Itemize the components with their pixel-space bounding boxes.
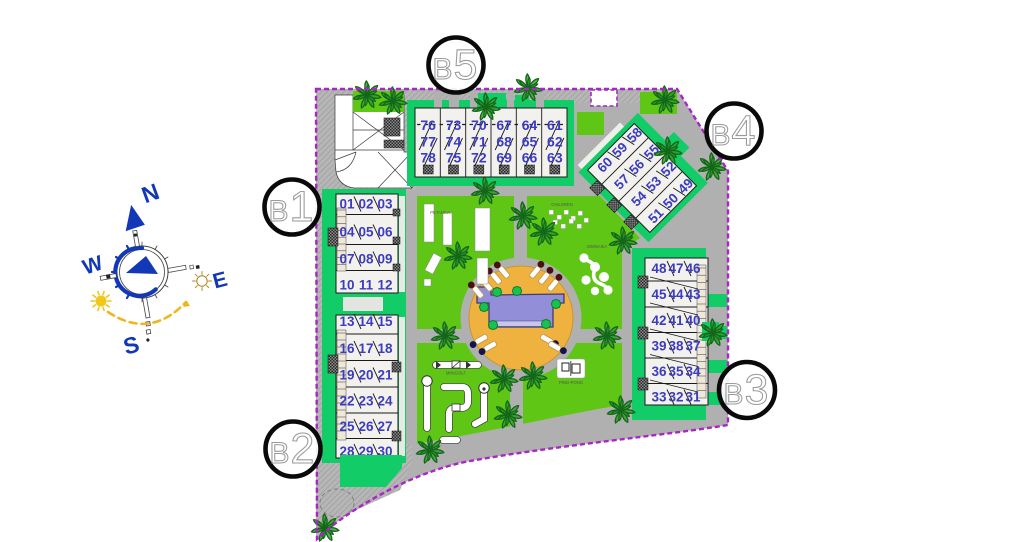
svg-text:75: 75 <box>446 150 462 166</box>
svg-text:76: 76 <box>420 117 436 133</box>
svg-text:65: 65 <box>522 134 538 150</box>
svg-text:07: 07 <box>339 252 354 267</box>
svg-text:61: 61 <box>547 117 563 133</box>
svg-text:74: 74 <box>446 134 462 150</box>
svg-text:03: 03 <box>377 197 393 212</box>
svg-text:CHILDREN: CHILDREN <box>551 202 572 207</box>
svg-text:70: 70 <box>471 117 487 133</box>
svg-text:09: 09 <box>377 252 392 267</box>
svg-text:32: 32 <box>668 390 683 405</box>
svg-text:44: 44 <box>668 287 684 302</box>
svg-text:36: 36 <box>651 364 667 379</box>
svg-text:37: 37 <box>685 339 700 354</box>
svg-text:PETANCA: PETANCA <box>430 210 450 215</box>
svg-text:27: 27 <box>377 419 392 434</box>
svg-text:42: 42 <box>651 313 666 328</box>
svg-text:06: 06 <box>377 225 393 240</box>
svg-text:22: 22 <box>339 394 354 409</box>
svg-text:11: 11 <box>359 278 374 293</box>
svg-text:10: 10 <box>339 278 354 293</box>
svg-text:64: 64 <box>522 117 538 133</box>
svg-text:W: W <box>80 251 106 279</box>
svg-text:20: 20 <box>358 368 373 383</box>
svg-text:31: 31 <box>685 390 701 405</box>
svg-text:17: 17 <box>358 341 373 356</box>
svg-text:12: 12 <box>377 278 392 293</box>
svg-text:69: 69 <box>496 150 512 166</box>
svg-text:35: 35 <box>668 364 684 379</box>
svg-text:67: 67 <box>496 117 512 133</box>
svg-text:46: 46 <box>685 261 701 276</box>
svg-text:04: 04 <box>339 225 355 240</box>
svg-text:48: 48 <box>651 261 667 276</box>
svg-text:78: 78 <box>420 150 436 166</box>
svg-text:77: 77 <box>420 134 436 150</box>
svg-text:N: N <box>138 178 163 208</box>
svg-text:62: 62 <box>547 134 563 150</box>
svg-text:40: 40 <box>685 313 700 328</box>
svg-text:41: 41 <box>668 313 684 328</box>
svg-text:MINIGOLF: MINIGOLF <box>446 371 467 376</box>
svg-text:38: 38 <box>668 339 684 354</box>
svg-text:S: S <box>120 331 142 360</box>
svg-text:33: 33 <box>651 390 667 405</box>
svg-text:14: 14 <box>358 314 374 329</box>
svg-text:15: 15 <box>377 314 393 329</box>
svg-text:43: 43 <box>685 287 701 302</box>
svg-text:01: 01 <box>339 197 355 212</box>
svg-text:66: 66 <box>522 150 538 166</box>
svg-text:23: 23 <box>358 394 374 409</box>
svg-text:PING-PONG: PING-PONG <box>559 380 583 385</box>
svg-text:45: 45 <box>651 287 667 302</box>
svg-text:72: 72 <box>471 150 487 166</box>
svg-text:18: 18 <box>377 341 393 356</box>
svg-text:39: 39 <box>651 339 666 354</box>
svg-text:71: 71 <box>471 134 487 150</box>
svg-text:25: 25 <box>339 419 355 434</box>
svg-text:08: 08 <box>358 252 374 267</box>
svg-text:63: 63 <box>547 150 563 166</box>
svg-text:E: E <box>210 268 229 294</box>
svg-text:47: 47 <box>668 261 683 276</box>
svg-text:16: 16 <box>339 341 355 356</box>
svg-text:02: 02 <box>358 197 373 212</box>
svg-text:24: 24 <box>377 394 393 409</box>
svg-text:68: 68 <box>496 134 512 150</box>
svg-text:73: 73 <box>446 117 462 133</box>
svg-text:19: 19 <box>339 368 354 383</box>
svg-text:13: 13 <box>339 314 355 329</box>
svg-text:21: 21 <box>377 368 393 383</box>
svg-text:05: 05 <box>358 225 374 240</box>
svg-text:GIMNASIA: GIMNASIA <box>587 244 608 249</box>
svg-text:26: 26 <box>358 419 374 434</box>
svg-text:34: 34 <box>685 364 701 379</box>
